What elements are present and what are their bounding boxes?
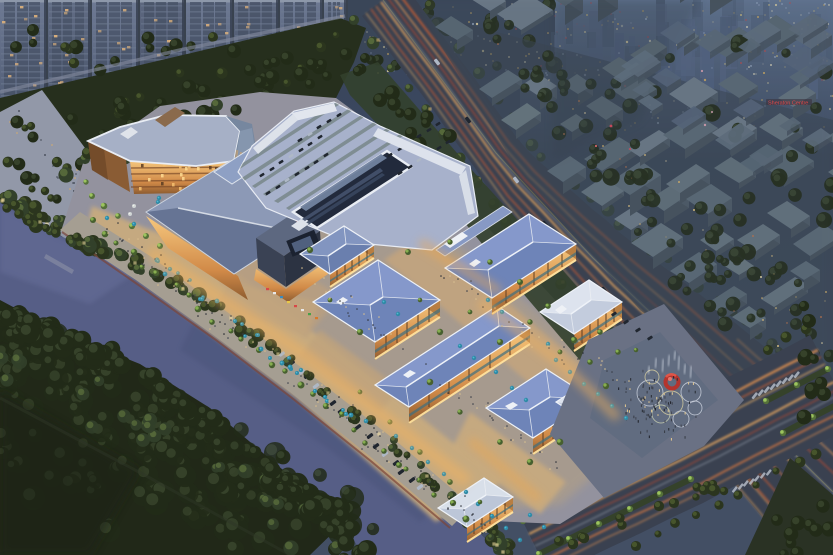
svg-text:Sheraton Centre: Sheraton Centre [768,101,808,107]
